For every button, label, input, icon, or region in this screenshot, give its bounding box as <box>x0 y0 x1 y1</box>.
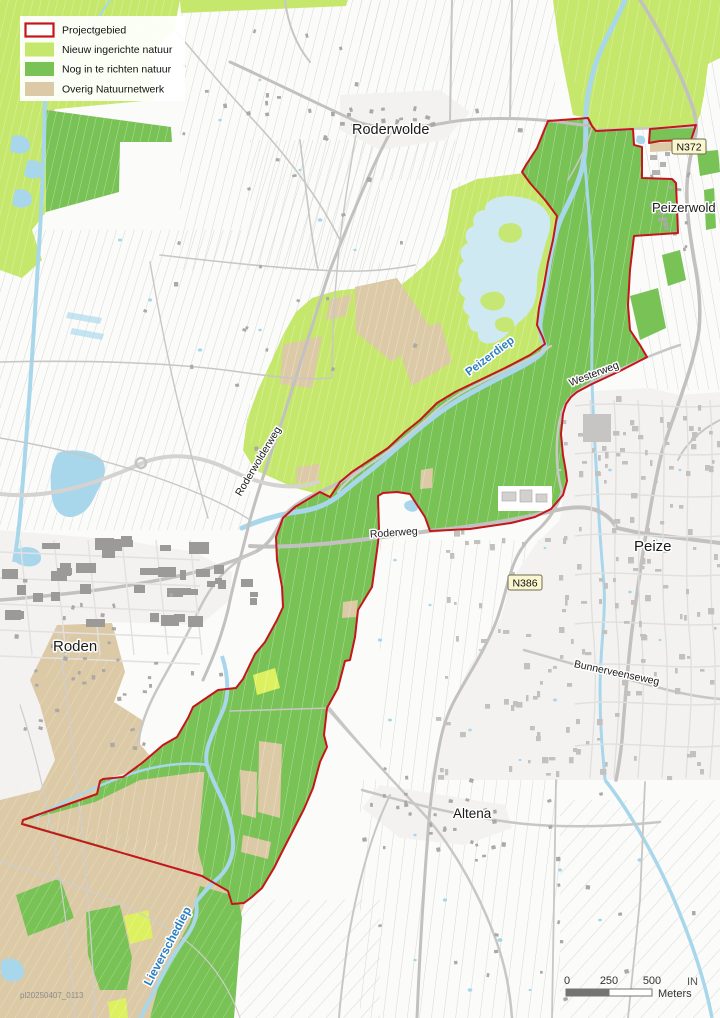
svg-text:IN: IN <box>687 976 698 988</box>
svg-text:500: 500 <box>643 975 661 987</box>
svg-text:Roden: Roden <box>53 638 97 655</box>
svg-text:Peize: Peize <box>634 538 672 555</box>
svg-text:250: 250 <box>600 975 618 987</box>
svg-text:N372: N372 <box>676 142 701 154</box>
svg-text:Nieuw ingerichte natuur: Nieuw ingerichte natuur <box>62 44 173 56</box>
svg-text:Meters: Meters <box>658 988 692 1000</box>
svg-text:N386: N386 <box>512 578 537 590</box>
svg-text:pl20250407_0113: pl20250407_0113 <box>20 991 84 1000</box>
svg-text:Projectgebied: Projectgebied <box>62 25 126 37</box>
svg-text:Overig Natuurnetwerk: Overig Natuurnetwerk <box>62 84 165 96</box>
svg-text:Roderwolde: Roderwolde <box>352 122 429 138</box>
svg-text:Altena: Altena <box>453 806 492 821</box>
svg-text:0: 0 <box>564 975 570 987</box>
svg-text:Nog in te richten natuur: Nog in te richten natuur <box>62 64 172 76</box>
svg-text:Peizerwold: Peizerwold <box>652 200 716 215</box>
